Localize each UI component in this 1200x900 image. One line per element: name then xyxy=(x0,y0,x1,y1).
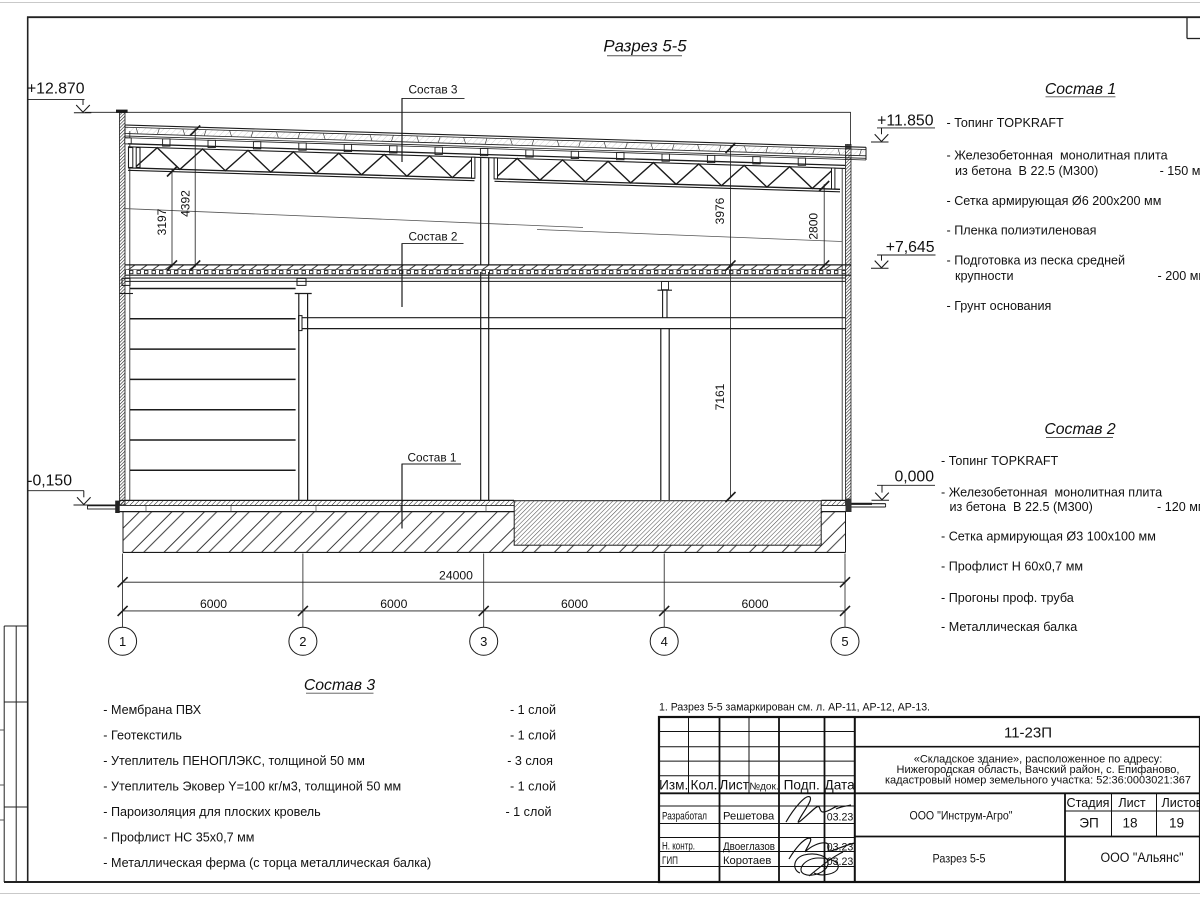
svg-text:- Железобетонная монолитная п: - Железобетонная монолитная плита xyxy=(947,149,1168,163)
svg-text:- Подготовка из песка средней: - Подготовка из песка средней xyxy=(947,254,1126,268)
svg-text:Коротаев: Коротаев xyxy=(723,855,771,867)
svg-text:- 1 слой: - 1 слой xyxy=(510,729,556,743)
svg-text:- Топинг TOPKRAFT: - Топинг TOPKRAFT xyxy=(947,116,1065,130)
svg-text:03.23: 03.23 xyxy=(827,856,854,868)
svg-text:- Профлист НС 35х0,7 мм: - Профлист НС 35х0,7 мм xyxy=(103,831,254,845)
svg-text:+11.850: +11.850 xyxy=(877,113,934,130)
svg-text:19: 19 xyxy=(1169,816,1184,831)
svg-text:Разработал: Разработал xyxy=(662,811,707,823)
svg-text:из бетона В 22.5 (М300): из бетона В 22.5 (М300) xyxy=(955,164,1098,178)
svg-text:3976: 3976 xyxy=(713,197,727,224)
svg-text:7161: 7161 xyxy=(713,383,727,410)
svg-text:Изм.: Изм. xyxy=(659,778,688,793)
svg-text:-0,150: -0,150 xyxy=(27,473,72,490)
svg-text:Решетова: Решетова xyxy=(723,811,775,823)
svg-text:3: 3 xyxy=(480,634,487,649)
svg-text:Состав 1: Состав 1 xyxy=(1045,81,1116,98)
svg-text:Кол.: Кол. xyxy=(691,778,718,793)
svg-text:- 3 слоя: - 3 слоя xyxy=(507,754,553,768)
svg-text:Состав 1: Состав 1 xyxy=(408,451,457,465)
svg-text:- Пленка полиэтиленовая: - Пленка полиэтиленовая xyxy=(947,224,1097,238)
svg-text:- Сетка армирующая Ø3 100х100: - Сетка армирующая Ø3 100х100 мм xyxy=(941,530,1156,544)
svg-text:Н. контр.: Н. контр. xyxy=(662,841,695,853)
svg-text:из бетона В 22.5 (М300): из бетона В 22.5 (М300) xyxy=(950,500,1093,514)
svg-text:- Железобетонная монолитная п: - Железобетонная монолитная плита xyxy=(941,486,1162,500)
svg-text:03.23: 03.23 xyxy=(827,812,854,824)
svg-text:Двоеглазов: Двоеглазов xyxy=(723,841,775,853)
svg-text:№док.: №док. xyxy=(749,782,778,793)
svg-text:- 150 мм: - 150 мм xyxy=(1160,164,1200,178)
svg-text:Состав 2: Состав 2 xyxy=(409,230,458,244)
svg-text:4392: 4392 xyxy=(178,190,192,217)
svg-text:крупности: крупности xyxy=(955,269,1014,283)
svg-text:Лист: Лист xyxy=(1118,796,1146,810)
svg-text:- Грунт основания: - Грунт основания xyxy=(947,299,1052,313)
svg-text:- Металлическая балка: - Металлическая балка xyxy=(941,620,1077,634)
svg-text:6000: 6000 xyxy=(380,597,407,611)
svg-text:- Утеплитель ПЕНОПЛЭКС, толщин: - Утеплитель ПЕНОПЛЭКС, толщиной 50 мм xyxy=(103,754,365,768)
svg-text:4: 4 xyxy=(661,634,668,649)
svg-text:- 1 слой: - 1 слой xyxy=(505,805,551,819)
svg-text:- Сетка армирующая Ø6 200х200: - Сетка армирующая Ø6 200х200 мм xyxy=(947,194,1162,208)
svg-text:ООО "Альянс": ООО "Альянс" xyxy=(1101,850,1184,865)
svg-text:Разрез 5-5: Разрез 5-5 xyxy=(933,852,986,866)
svg-text:2: 2 xyxy=(299,634,306,649)
svg-text:0,000: 0,000 xyxy=(894,469,934,486)
svg-text:ГИП: ГИП xyxy=(662,855,678,867)
svg-text:Стадия: Стадия xyxy=(1067,796,1110,810)
svg-text:- Утеплитель Эковер Y=100 кг/м: - Утеплитель Эковер Y=100 кг/м3, толщино… xyxy=(103,780,401,794)
svg-text:- Профлист Н 60х0,7 мм: - Профлист Н 60х0,7 мм xyxy=(941,560,1083,574)
svg-text:6000: 6000 xyxy=(741,597,768,611)
svg-text:- 1 слой: - 1 слой xyxy=(510,703,556,717)
svg-text:- 1 слой: - 1 слой xyxy=(510,780,556,794)
svg-text:2800: 2800 xyxy=(807,213,821,240)
svg-text:- Прогоны проф. труба: - Прогоны проф. труба xyxy=(941,591,1074,605)
svg-text:- Металлическая ферма (с торца: - Металлическая ферма (с торца металличе… xyxy=(103,856,431,870)
svg-text:кадастровый номер земельного у: кадастровый номер земельного участка: 52… xyxy=(885,775,1191,787)
svg-text:1. Разрез 5-5 замаркирован см.: 1. Разрез 5-5 замаркирован см. л. АР-11,… xyxy=(659,702,930,714)
svg-text:Состав 3: Состав 3 xyxy=(304,677,375,694)
svg-text:6000: 6000 xyxy=(200,597,227,611)
svg-text:+12.870: +12.870 xyxy=(27,81,85,98)
svg-text:Листов: Листов xyxy=(1162,796,1200,810)
svg-text:Состав 3: Состав 3 xyxy=(409,83,458,97)
svg-text:6000: 6000 xyxy=(561,597,588,611)
svg-text:24000: 24000 xyxy=(439,569,473,583)
svg-text:11-23П: 11-23П xyxy=(1004,725,1052,742)
svg-text:- Пароизоляция для плоских кро: - Пароизоляция для плоских кровель xyxy=(103,805,321,819)
svg-text:Разрез 5-5: Разрез 5-5 xyxy=(603,37,687,56)
svg-text:- Мембрана ПВХ: - Мембрана ПВХ xyxy=(103,703,201,717)
svg-text:Лист: Лист xyxy=(719,778,749,793)
svg-text:5: 5 xyxy=(841,634,848,649)
svg-text:Состав 2: Состав 2 xyxy=(1044,421,1115,438)
svg-text:Подп.: Подп. xyxy=(784,778,820,793)
svg-text:- Геотекстиль: - Геотекстиль xyxy=(103,729,182,743)
svg-text:+7,645: +7,645 xyxy=(886,239,935,256)
svg-text:1: 1 xyxy=(119,634,126,649)
svg-text:- 200 мм: - 200 мм xyxy=(1158,269,1200,283)
svg-text:ЭП: ЭП xyxy=(1079,816,1099,831)
svg-text:ООО "Инструм-Агро": ООО "Инструм-Агро" xyxy=(910,809,1013,823)
svg-text:3197: 3197 xyxy=(155,208,169,235)
svg-text:Дата: Дата xyxy=(825,778,856,793)
svg-text:- 120 мм: - 120 мм xyxy=(1157,500,1200,514)
svg-text:18: 18 xyxy=(1122,816,1137,831)
svg-text:- Топинг TOPKRAFT: - Топинг TOPKRAFT xyxy=(941,454,1059,468)
